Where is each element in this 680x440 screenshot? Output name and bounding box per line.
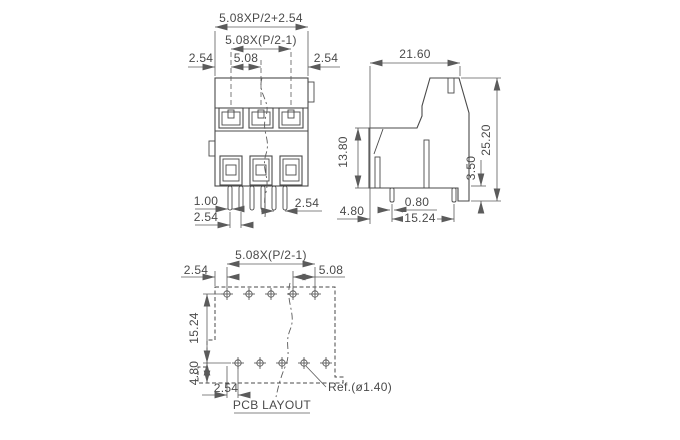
side-dim-pin-span-label: 15.24	[404, 211, 436, 225]
side-view-outline	[369, 78, 469, 201]
side-dim-height-label: 25.20	[479, 124, 493, 156]
pcb-layout-view: 5.08X(P/2-1) 2.54 5.08 15.24 4.80 2.54 R…	[181, 248, 392, 413]
screw-slot	[448, 78, 454, 93]
front-dim-pin-pitch-label: 2.54	[194, 210, 219, 224]
technical-drawing-canvas: 5.08XP/2+2.54 5.08X(P/2-1) 2.54 5.08 2.5…	[0, 0, 680, 440]
side-chamfer-line	[374, 129, 383, 154]
front-view: 5.08XP/2+2.54 5.08X(P/2-1) 2.54 5.08 2.5…	[188, 11, 340, 228]
side-dim-width-label: 21.60	[399, 47, 431, 61]
side-dim-step-height-label: 3.50	[464, 156, 478, 181]
pcb-dim-row-span-label: 15.24	[187, 312, 201, 344]
front-view-outline	[215, 78, 308, 186]
wire-opening	[250, 156, 272, 185]
front-dim-pitch-label: 5.08	[234, 51, 259, 65]
mounting-hole	[254, 357, 266, 369]
front-dim-pin-width-label: 1.00	[194, 194, 219, 208]
wire-opening	[280, 156, 302, 185]
screw-terminal	[279, 108, 303, 128]
front-side-tab	[308, 82, 314, 102]
mounting-hole-row	[221, 288, 321, 300]
leader-line	[306, 366, 326, 387]
side-dim-pin-thickness-label: 0.80	[405, 195, 430, 209]
internal-pin	[375, 157, 380, 188]
pcb-ref-label: Ref.(ø1.40)	[328, 380, 392, 394]
front-side-tab	[209, 141, 215, 156]
solder-pin	[390, 188, 394, 202]
front-dim-span-label: 5.08X(P/2-1)	[225, 33, 297, 47]
pcb-dim-left-label: 2.54	[184, 263, 209, 277]
pcb-outline	[198, 287, 343, 383]
pcb-dim-span-label: 5.08X(P/2-1)	[235, 248, 307, 262]
pcb-dim-row-offset-label: 4.80	[187, 361, 201, 386]
front-dim-total-label: 5.08XP/2+2.54	[219, 11, 303, 25]
screw-terminal	[249, 108, 273, 128]
wire-opening	[220, 156, 242, 185]
solder-pin	[452, 188, 456, 202]
pcb-title: PCB LAYOUT	[233, 398, 311, 412]
terminal-block-drawing: 5.08XP/2+2.54 5.08X(P/2-1) 2.54 5.08 2.5…	[0, 0, 680, 440]
mounting-hole	[265, 288, 277, 300]
front-dim-pin-pitch-right-label: 2.54	[295, 196, 320, 210]
front-dim-right-label: 2.54	[314, 51, 339, 65]
mounting-hole	[243, 288, 255, 300]
mounting-hole	[309, 288, 321, 300]
mounting-hole	[298, 357, 310, 369]
mounting-hole-row	[232, 357, 332, 369]
front-dim-left-label: 2.54	[189, 51, 214, 65]
solder-pin-row	[228, 186, 287, 210]
internal-pin	[424, 140, 429, 188]
mounting-hole	[221, 288, 233, 300]
pcb-dim-pitch-label: 5.08	[319, 263, 344, 277]
side-dim-body-height-label: 13.80	[336, 136, 350, 168]
side-view: 21.60 25.20 13.80 3.50 0.80 15.24 4.80	[336, 47, 501, 225]
break-line	[261, 78, 268, 217]
screw-terminal	[219, 108, 243, 128]
pcb-dim-col-offset-label: 2.54	[214, 381, 239, 395]
side-dim-pin-offset-label: 4.80	[340, 204, 365, 218]
mounting-hole	[320, 357, 332, 369]
break-line	[276, 283, 292, 397]
